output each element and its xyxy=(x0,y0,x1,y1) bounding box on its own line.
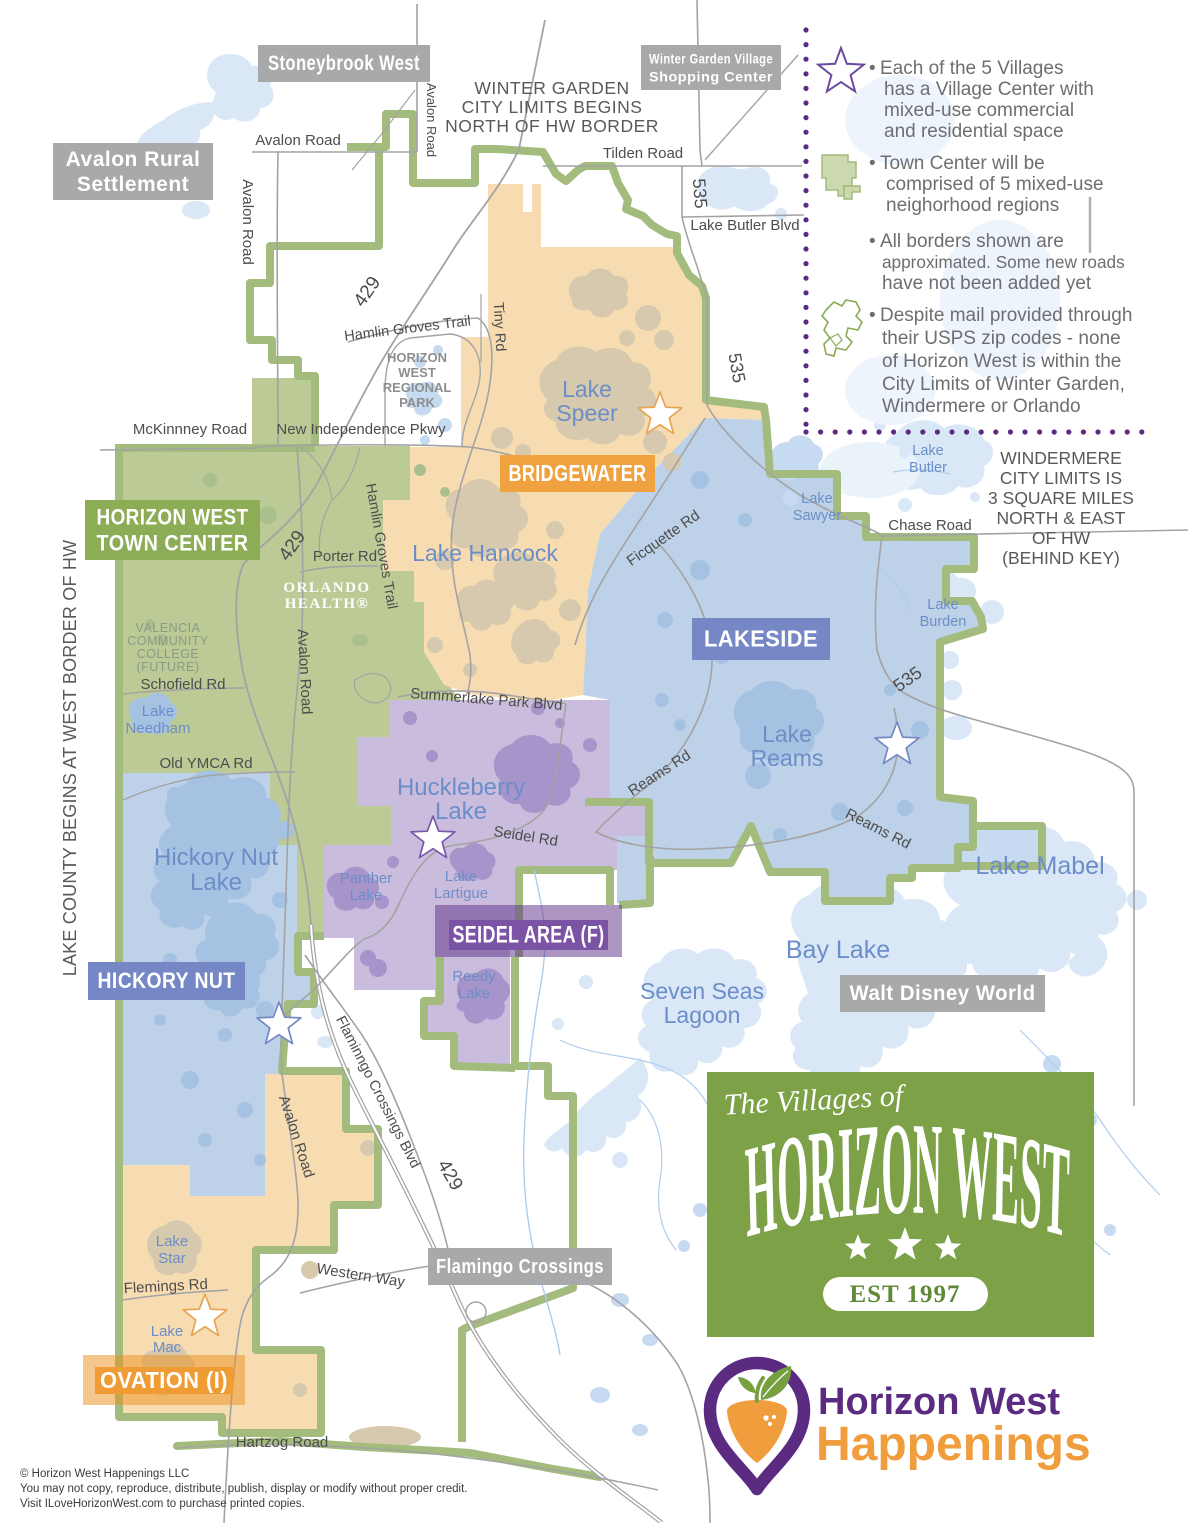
svg-text:Seven Seas: Seven Seas xyxy=(640,978,764,1004)
svg-text:© Horizon West Happenings LLC: © Horizon West Happenings LLC xyxy=(20,1468,189,1480)
svg-text:Lartigue: Lartigue xyxy=(434,885,488,902)
svg-text:Lake: Lake xyxy=(435,798,487,825)
svg-text:McKinnney Road: McKinnney Road xyxy=(133,421,247,438)
svg-text:WINDERMERE: WINDERMERE xyxy=(1000,448,1122,468)
svg-text:has a Village Center with: has a Village Center with xyxy=(884,79,1094,100)
svg-text:Chase Road: Chase Road xyxy=(888,517,971,534)
svg-text:of Horizon West is within the: of Horizon West is within the xyxy=(882,351,1121,372)
svg-text:PARK: PARK xyxy=(399,395,435,410)
svg-text:CITY LIMITS BEGINS: CITY LIMITS BEGINS xyxy=(462,97,643,117)
svg-text:Lake: Lake xyxy=(801,491,832,507)
svg-text:Stoneybrook West: Stoneybrook West xyxy=(268,52,420,75)
svg-text:Avalon Road: Avalon Road xyxy=(239,179,256,265)
svg-text:mixed-use commercial: mixed-use commercial xyxy=(884,100,1074,121)
svg-text:Old YMCA Rd: Old YMCA Rd xyxy=(159,755,252,772)
svg-text:Horizon West: Horizon West xyxy=(818,1381,1060,1423)
svg-text:Star: Star xyxy=(158,1250,186,1267)
svg-text:SEIDEL AREA (F): SEIDEL AREA (F) xyxy=(453,922,605,949)
svg-text:Walt Disney World: Walt Disney World xyxy=(850,982,1036,1005)
svg-text:Needham: Needham xyxy=(125,720,190,737)
svg-text:•: • xyxy=(869,153,876,174)
svg-text:ORLANDO: ORLANDO xyxy=(283,580,370,596)
svg-text:Town Center will be: Town Center will be xyxy=(880,153,1045,174)
svg-text:approximated. Some new roads: approximated. Some new roads xyxy=(882,252,1125,272)
svg-text:Lake: Lake xyxy=(156,1233,189,1250)
svg-text:Lagoon: Lagoon xyxy=(664,1002,741,1028)
svg-text:•: • xyxy=(869,231,876,252)
svg-text:Hartzog Road: Hartzog Road xyxy=(236,1434,329,1451)
svg-text:Lake Mabel: Lake Mabel xyxy=(975,852,1104,880)
svg-text:Winter Garden Village: Winter Garden Village xyxy=(649,51,773,67)
svg-text:All borders shown are: All borders shown are xyxy=(880,231,1064,252)
svg-text:Avalon Road: Avalon Road xyxy=(255,132,341,149)
svg-text:neighorhood regions: neighorhood regions xyxy=(886,195,1059,216)
svg-text:their USPS zip codes - none: their USPS zip codes - none xyxy=(882,328,1121,349)
svg-text:LAKESIDE: LAKESIDE xyxy=(704,625,818,651)
svg-text:COMMUNITY: COMMUNITY xyxy=(127,634,209,648)
svg-text:EST 1997: EST 1997 xyxy=(849,1281,960,1308)
svg-text:Lake: Lake xyxy=(350,887,383,904)
svg-text:Huckleberry: Huckleberry xyxy=(397,774,525,801)
svg-text:BRIDGEWATER: BRIDGEWATER xyxy=(509,460,647,486)
svg-text:Schofield Rd: Schofield Rd xyxy=(140,676,225,693)
svg-text:WEST: WEST xyxy=(398,365,436,380)
svg-text:Lake: Lake xyxy=(562,376,612,402)
svg-text:(BEHIND KEY): (BEHIND KEY) xyxy=(1002,548,1120,568)
svg-text:Reedy: Reedy xyxy=(452,968,496,985)
svg-text:Shopping Center: Shopping Center xyxy=(649,69,773,85)
svg-text:Bay Lake: Bay Lake xyxy=(786,936,890,964)
svg-text:TOWN CENTER: TOWN CENTER xyxy=(97,530,249,555)
svg-text:VALENCIA: VALENCIA xyxy=(136,621,201,635)
svg-text:Mac: Mac xyxy=(153,1339,182,1356)
svg-text:OF HW: OF HW xyxy=(1032,528,1091,548)
svg-text:•: • xyxy=(869,305,876,326)
svg-text:3 SQUARE MILES: 3 SQUARE MILES xyxy=(988,488,1134,508)
svg-text:WINTER GARDEN: WINTER GARDEN xyxy=(474,78,629,98)
svg-text:HORIZON: HORIZON xyxy=(387,350,447,365)
svg-text:comprised of 5 mixed-use: comprised of 5 mixed-use xyxy=(886,174,1104,195)
svg-text:NORTH & EAST: NORTH & EAST xyxy=(996,508,1125,528)
svg-text:Lake: Lake xyxy=(151,1323,184,1340)
svg-text:and residential space: and residential space xyxy=(884,121,1064,142)
svg-text:HORIZON WEST: HORIZON WEST xyxy=(97,504,249,529)
svg-text:Flamingo Crossings: Flamingo Crossings xyxy=(436,1256,604,1278)
svg-text:Despite mail provided through: Despite mail provided through xyxy=(880,305,1132,326)
svg-text:Lake: Lake xyxy=(445,868,478,885)
svg-text:HICKORY NUT: HICKORY NUT xyxy=(98,968,236,993)
svg-text:Lake: Lake xyxy=(912,443,943,459)
svg-text:COLLEGE: COLLEGE xyxy=(137,647,200,661)
svg-text:Speer: Speer xyxy=(556,400,618,426)
svg-text:New Independence Pkwy: New Independence Pkwy xyxy=(276,421,446,438)
svg-text:Porter Rd: Porter Rd xyxy=(313,548,377,565)
svg-text:Windermere or Orlando: Windermere or Orlando xyxy=(882,396,1081,417)
svg-text:Avalon Road: Avalon Road xyxy=(424,83,439,157)
svg-text:OVATION (I): OVATION (I) xyxy=(100,1367,228,1393)
svg-text:REGIONAL: REGIONAL xyxy=(383,380,452,395)
svg-text:Butler: Butler xyxy=(909,460,947,476)
svg-text:Happenings: Happenings xyxy=(816,1418,1091,1471)
svg-text:have not been added yet: have not been added yet xyxy=(882,273,1092,294)
svg-text:HEALTH®: HEALTH® xyxy=(285,596,370,612)
svg-text:Settlement: Settlement xyxy=(77,173,189,196)
svg-text:Lake: Lake xyxy=(458,985,491,1002)
svg-text:Lake Hancock: Lake Hancock xyxy=(412,540,558,566)
svg-text:(FUTURE): (FUTURE) xyxy=(136,660,199,674)
svg-text:City Limits of Winter Garden,: City Limits of Winter Garden, xyxy=(882,374,1125,395)
svg-text:NORTH OF HW BORDER: NORTH OF HW BORDER xyxy=(445,116,659,136)
svg-text:535: 535 xyxy=(689,178,712,210)
svg-text:Tilden Road: Tilden Road xyxy=(603,145,683,162)
svg-text:Avalon Rural: Avalon Rural xyxy=(66,148,201,171)
svg-text:You may not copy, reproduce, d: You may not copy, reproduce, distribute,… xyxy=(20,1483,467,1495)
svg-text:Each of the 5 Villages: Each of the 5 Villages xyxy=(880,58,1063,79)
svg-text:Hickory Nut: Hickory Nut xyxy=(154,844,278,871)
svg-text:Lake: Lake xyxy=(927,597,958,613)
svg-text:LAKE COUNTY BEGINS AT WEST BOR: LAKE COUNTY BEGINS AT WEST BORDER OF HW xyxy=(60,540,80,977)
svg-text:Lake: Lake xyxy=(142,703,175,720)
svg-text:Lake Butler Blvd: Lake Butler Blvd xyxy=(690,217,799,234)
svg-text:CITY LIMITS IS: CITY LIMITS IS xyxy=(1000,468,1122,488)
svg-text:Burden: Burden xyxy=(920,614,967,630)
svg-text:•: • xyxy=(869,58,876,79)
svg-text:Sawyer: Sawyer xyxy=(793,508,842,524)
svg-text:Panther: Panther xyxy=(340,870,393,887)
svg-text:Lake: Lake xyxy=(762,721,812,747)
svg-text:Lake: Lake xyxy=(190,869,242,896)
svg-text:Tiny Rd: Tiny Rd xyxy=(490,302,509,352)
svg-text:Reams: Reams xyxy=(751,745,824,771)
svg-text:Visit ILoveHorizonWest.com to: Visit ILoveHorizonWest.com to purchase p… xyxy=(20,1498,305,1510)
